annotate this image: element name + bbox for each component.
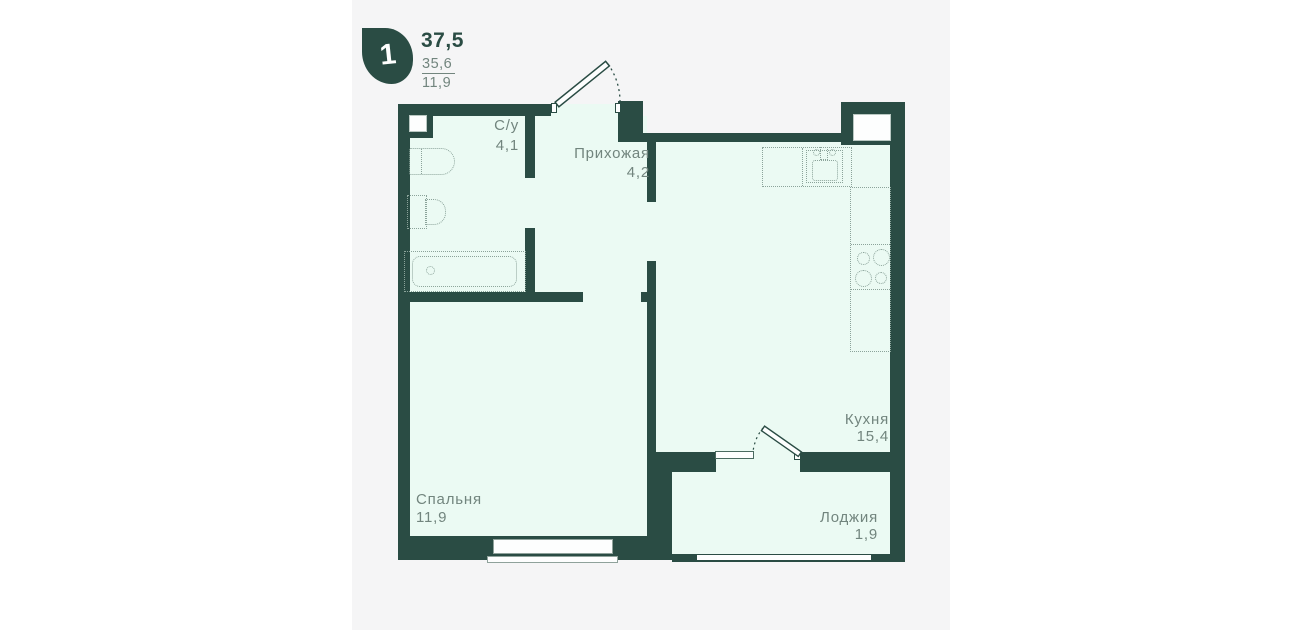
room-area: 4,2: [498, 163, 650, 182]
bedroom-window: [493, 539, 613, 554]
kitchen-sink-basin: [812, 160, 838, 181]
wall: [618, 101, 643, 142]
room-label-bedroom: Спальня 11,9: [416, 491, 556, 527]
wall: [890, 102, 905, 562]
kitchen-sink-tap: [829, 149, 836, 156]
room-name: Прихожая: [498, 144, 650, 163]
bedroom-window-sill: [487, 556, 618, 563]
room-area: 15,4: [748, 428, 889, 445]
wall: [525, 228, 535, 302]
room-name: Спальня: [416, 491, 556, 509]
kitchen-sink-tap: [813, 149, 820, 156]
kitchen-loggia-window: [715, 451, 754, 459]
toilet-tank-fixture-icon: [407, 195, 427, 229]
kitchen-counter-divider: [851, 244, 890, 245]
room-name: Кухня: [748, 411, 889, 428]
wall: [655, 472, 672, 556]
stove-burner-icon: [857, 252, 870, 265]
room-label-loggia: Лоджия 1,9: [738, 509, 878, 543]
kitchen-counter-fixture-icon: [850, 187, 891, 352]
wall: [398, 292, 583, 302]
plan-legend: 1 37,5 35,6 11,9: [362, 28, 502, 92]
wall: [643, 133, 851, 142]
total-area: 37,5: [421, 29, 464, 53]
wall: [641, 292, 647, 302]
leaf-logo-icon: 1: [362, 28, 413, 84]
vent-duct-box: [853, 114, 891, 141]
room-area: 1,9: [738, 526, 878, 543]
entry-door-jamb: [551, 103, 557, 113]
room-area: 11,9: [422, 75, 451, 91]
balcony-door-jamb: [794, 451, 801, 460]
room-label-kitchen: Кухня 15,4: [748, 411, 889, 445]
living-area: 35,6: [422, 56, 455, 74]
room-label-hallway: Прихожая 4,2: [498, 144, 650, 182]
stove-burner-icon: [855, 270, 872, 287]
rooms-count: 1: [379, 38, 399, 73]
kitchen-sink-faucet: [820, 147, 828, 160]
entry-door-jamb: [615, 103, 621, 113]
kitchen-counter-divider: [851, 289, 890, 290]
loggia-glazing: [697, 555, 871, 560]
room-area: 11,9: [416, 509, 556, 527]
stove-burner-icon: [875, 272, 887, 284]
stove-burner-icon: [873, 249, 890, 266]
room-name: Лоджия: [738, 509, 878, 526]
bathtub-drain: [426, 266, 435, 275]
toilet-bowl-fixture-icon: [425, 199, 446, 225]
room-name: С/у: [420, 116, 519, 136]
floor-plan-page: 1 37,5 35,6 11,9: [0, 0, 1301, 630]
wall: [647, 452, 716, 472]
wall: [800, 452, 892, 472]
entry-opening-floor: [551, 104, 621, 118]
kitchen-counter-divider: [802, 148, 803, 186]
